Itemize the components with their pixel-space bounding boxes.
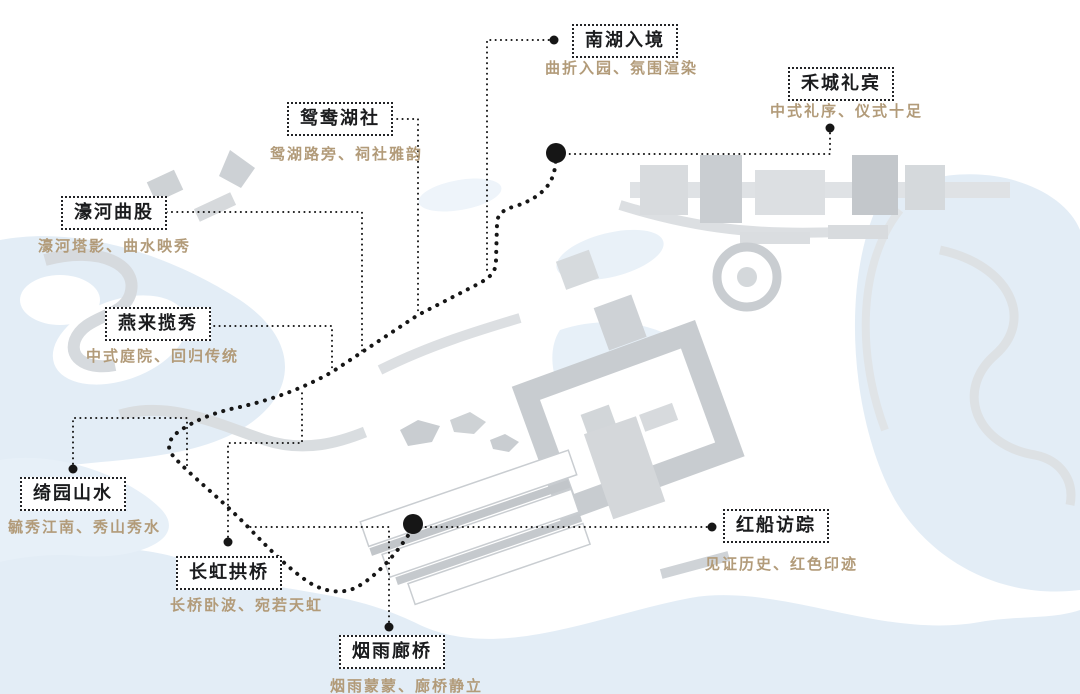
label-dot-hecheng [826, 124, 835, 133]
connector-line-nanhu [487, 40, 554, 274]
label-dot-changhong [224, 538, 233, 547]
label-dot-nanhu [550, 36, 559, 45]
poi-box-nanhu[interactable]: 南湖入境 [572, 24, 678, 58]
poi-box-haohe[interactable]: 濠河曲股 [61, 196, 167, 230]
connector-line-hecheng [566, 128, 830, 154]
poi-subtitle-hongchuan: 见证历史、红色印迹 [705, 556, 858, 574]
poi-subtitle-haohe: 濠河塔影、曲水映秀 [38, 238, 191, 256]
label-dot-qiyuan [69, 465, 78, 474]
poi-subtitle-hecheng: 中式礼序、仪式十足 [770, 103, 923, 121]
route-start-node [546, 143, 566, 163]
poi-box-hecheng[interactable]: 禾城礼宾 [788, 67, 894, 101]
label-dot-hongchuan [708, 523, 717, 532]
poi-box-yanlai[interactable]: 燕来揽秀 [105, 307, 211, 341]
label-dot-yanyu [385, 623, 394, 632]
poi-subtitle-changhong: 长桥卧波、宛若天虹 [170, 597, 323, 615]
poi-subtitle-yanyu: 烟雨蒙蒙、廊桥静立 [330, 678, 483, 694]
poi-box-yanyu[interactable]: 烟雨廊桥 [339, 635, 445, 669]
poi-subtitle-yuanyang: 鸳湖路旁、祠社雅韵 [270, 146, 423, 164]
poi-box-hongchuan[interactable]: 红船访踪 [723, 509, 829, 543]
poi-subtitle-nanhu: 曲折入园、氛围渲染 [545, 60, 698, 78]
poi-subtitle-qiyuan: 毓秀江南、秀山秀水 [8, 519, 161, 537]
poi-box-yuanyang[interactable]: 鸳鸯湖社 [287, 102, 393, 136]
tour-map-page: 南湖入境 曲折入园、氛围渲染 禾城礼宾 中式礼序、仪式十足 鸳鸯湖社 鸳湖路旁、… [0, 0, 1080, 694]
poi-subtitle-yanlai: 中式庭院、回归传统 [86, 348, 239, 366]
poi-box-changhong[interactable]: 长虹拱桥 [176, 556, 282, 590]
route-end-node [403, 514, 423, 534]
poi-box-qiyuan[interactable]: 绮园山水 [20, 477, 126, 511]
